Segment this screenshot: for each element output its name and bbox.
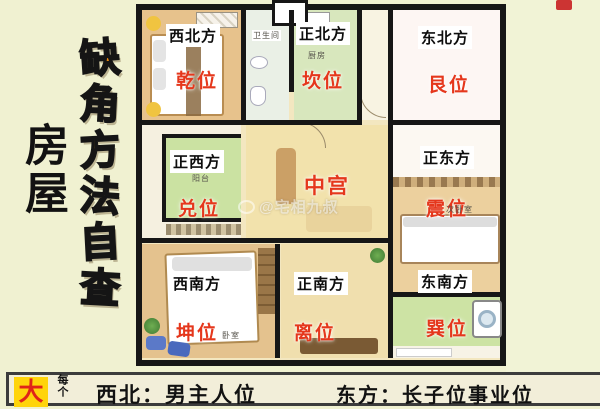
nightstand-icon — [146, 16, 161, 31]
wall — [289, 10, 294, 92]
wardrobe-icon — [258, 248, 276, 314]
slogan-char: 法 — [78, 173, 121, 222]
label-direction-east: 正东方 — [420, 146, 474, 169]
label-direction-southwest: 西南方 — [170, 272, 224, 295]
sidebar-title-vertical: 房屋 — [26, 122, 74, 232]
label-bagua-gen: 艮位 — [428, 70, 470, 97]
label-direction-northwest: 西北方 — [166, 24, 220, 47]
slogan-char: 缺 — [78, 35, 121, 84]
right-background-strip — [506, 0, 600, 400]
cushion-icon — [146, 336, 166, 350]
window-sill-icon — [166, 224, 241, 235]
label-bagua-kun: 坤位 — [176, 318, 218, 345]
pillow-icon — [172, 257, 252, 271]
wall — [241, 10, 246, 120]
wall — [275, 244, 280, 358]
label-direction-southeast: 东南方 — [418, 270, 472, 293]
label-room-bathroom: 卫生间 — [252, 30, 281, 41]
slogan-char: 自 — [79, 219, 121, 267]
pillow-icon — [153, 68, 166, 90]
watermark-logo-icon — [238, 200, 255, 214]
wall — [388, 120, 500, 125]
red-mark-icon — [556, 0, 572, 10]
wall — [357, 10, 362, 125]
footer-note-vertical: 每个 — [54, 374, 70, 398]
wall — [142, 120, 357, 125]
label-bagua-kan: 坎位 — [302, 66, 344, 93]
footer-text-northwest-master: 西北：男主人位 — [96, 379, 257, 409]
label-bagua-dui: 兑位 — [178, 194, 220, 221]
label-direction-northeast: 东北方 — [418, 26, 472, 49]
label-direction-north: 正北方 — [296, 22, 350, 45]
label-room-second-bedroom: 次卧室 — [446, 204, 473, 215]
label-bagua-qian: 乾位 — [176, 66, 218, 93]
toilet-icon — [250, 86, 266, 106]
label-bagua-xun: 巽位 — [426, 314, 468, 341]
label-direction-west: 正西方 — [170, 150, 224, 173]
watermark: @宅相九叔 — [238, 196, 339, 217]
label-direction-south: 正南方 — [294, 272, 348, 295]
wall — [142, 238, 388, 243]
plant-icon — [370, 248, 385, 263]
mat-icon — [396, 348, 452, 357]
footer-badge-da: 大 — [14, 377, 48, 407]
wall — [388, 10, 393, 358]
label-room-bedroom: 卧室 — [222, 330, 240, 341]
footer-text-east-career: 东方：长子位事业位 — [336, 379, 534, 408]
sidebar-slogan-vertical: 缺 角 方 法 自 查 — [74, 36, 126, 312]
nightstand-icon — [146, 102, 161, 117]
sink-icon — [250, 56, 268, 69]
label-room-kitchen: 厨房 — [308, 50, 326, 61]
plant-icon — [144, 318, 160, 334]
pillow-icon — [153, 40, 166, 62]
washer-drum-icon — [478, 310, 496, 328]
label-room-balcony: 阳台 — [192, 173, 210, 184]
curtain-icon — [393, 177, 500, 187]
watermark-text: @宅相九叔 — [259, 196, 339, 217]
slogan-char: 查 — [79, 265, 121, 313]
slogan-char: 方 — [79, 127, 121, 175]
slogan-char: 角 — [79, 81, 121, 129]
label-bagua-li: 离位 — [294, 318, 336, 345]
